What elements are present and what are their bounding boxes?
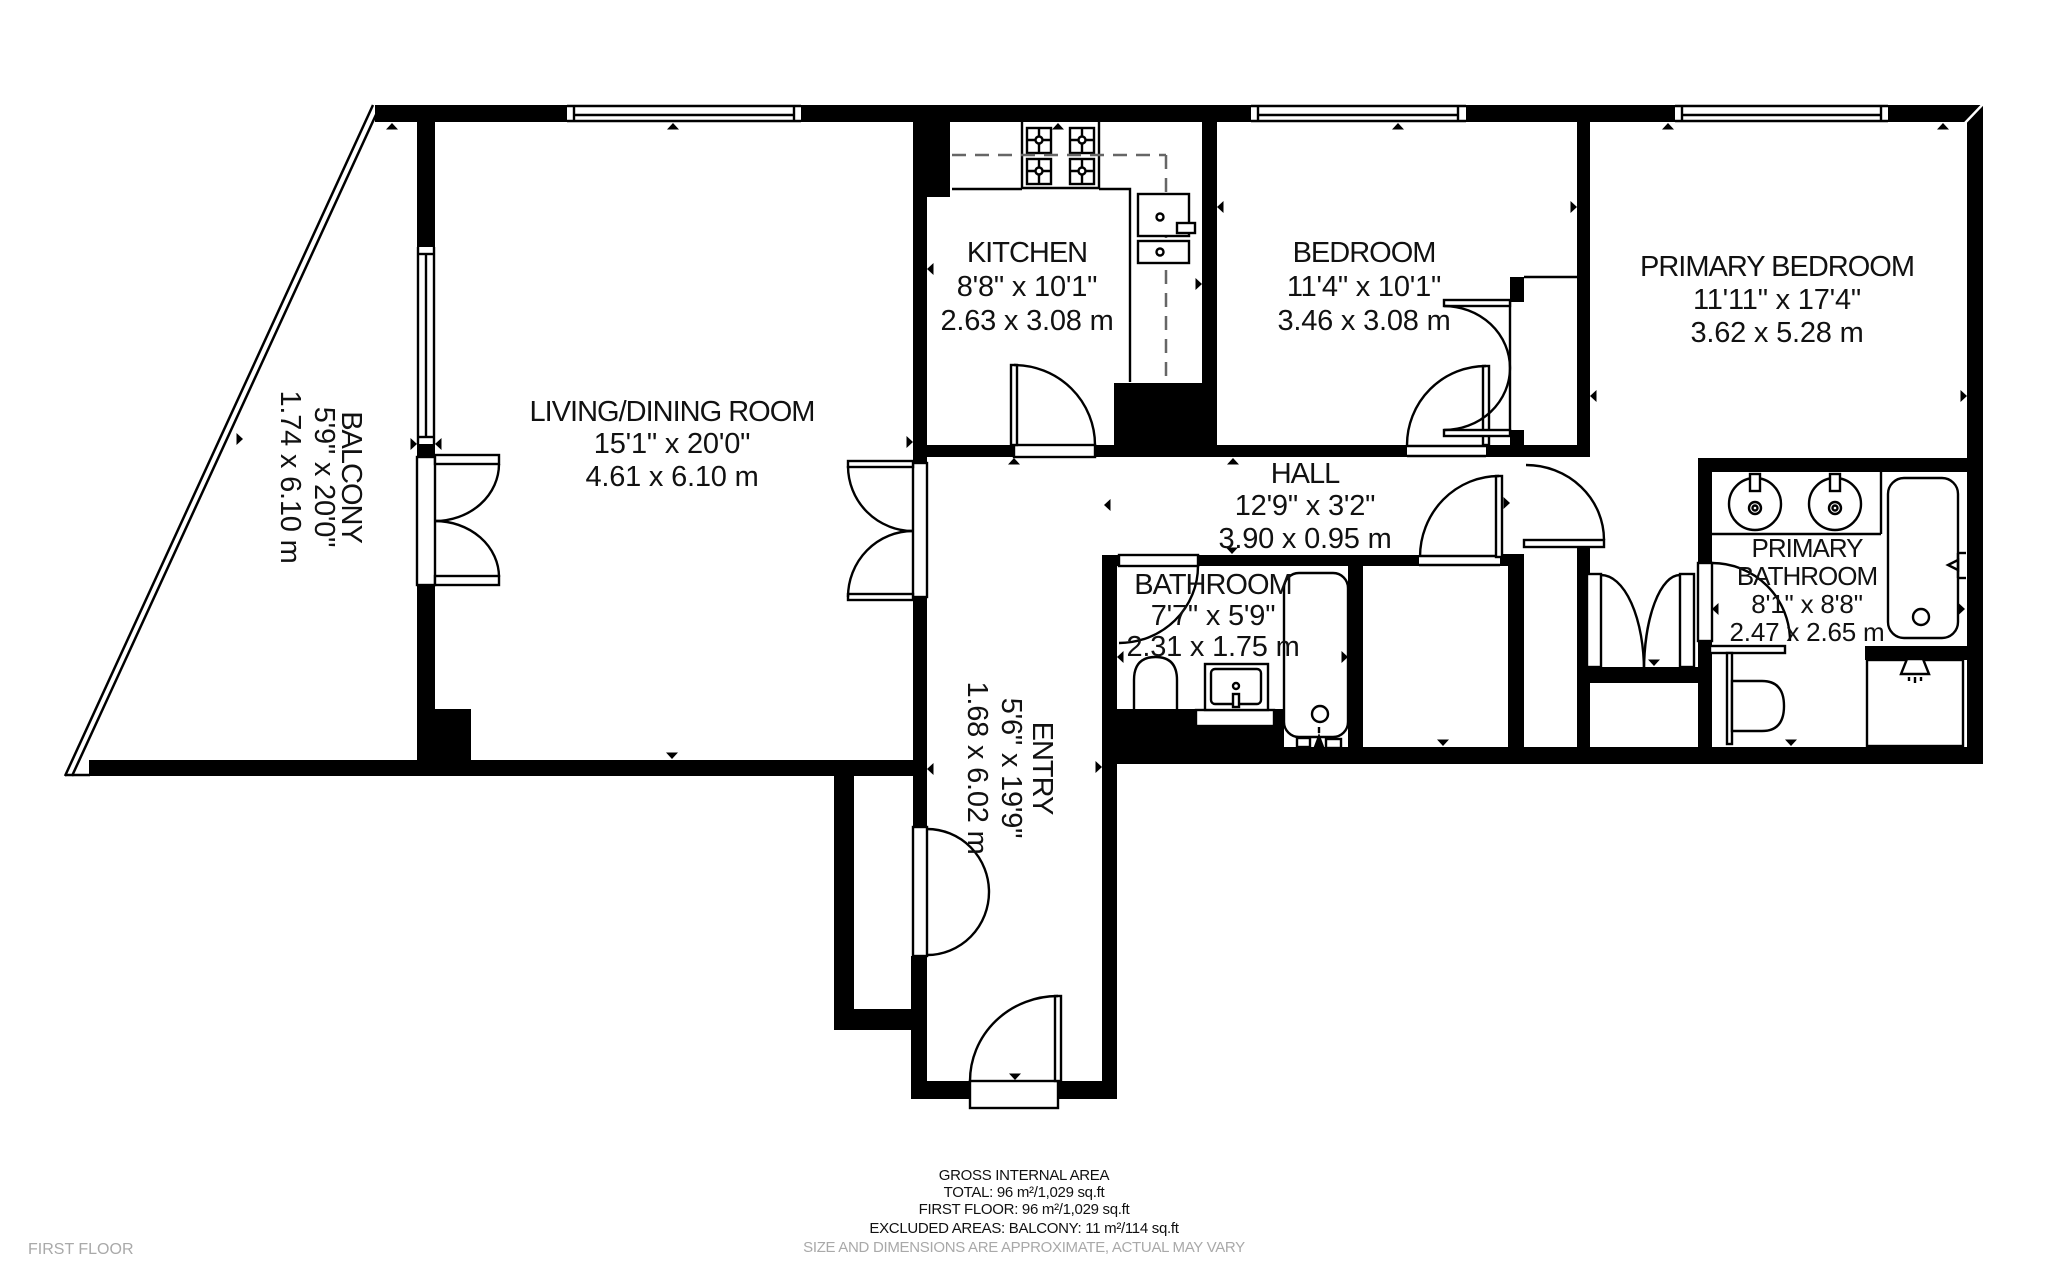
svg-text:PRIMARY BEDROOM: PRIMARY BEDROOM [1640, 251, 1914, 283]
svg-text:11'11" x 17'4": 11'11" x 17'4" [1693, 284, 1861, 316]
svg-text:7'7" x 5'9": 7'7" x 5'9" [1151, 600, 1276, 632]
svg-text:GROSS INTERNAL AREA: GROSS INTERNAL AREA [939, 1167, 1110, 1184]
svg-text:8'1" x 8'8": 8'1" x 8'8" [1751, 589, 1862, 619]
svg-text:EXCLUDED AREAS: BALCONY: 11 m²: EXCLUDED AREAS: BALCONY: 11 m²/114 sq.ft [869, 1220, 1179, 1237]
svg-text:BEDROOM: BEDROOM [1293, 237, 1436, 269]
svg-text:LIVING/DINING ROOM: LIVING/DINING ROOM [530, 396, 815, 428]
svg-text:BATHROOM: BATHROOM [1134, 569, 1291, 601]
svg-text:KITCHEN: KITCHEN [967, 237, 1087, 269]
svg-text:5'9" x 20'0": 5'9" x 20'0" [308, 407, 340, 548]
svg-text:2.63 x 3.08 m: 2.63 x 3.08 m [940, 305, 1113, 337]
svg-text:1.68 x 6.02 m: 1.68 x 6.02 m [961, 681, 993, 854]
svg-text:SIZE AND DIMENSIONS ARE APPROX: SIZE AND DIMENSIONS ARE APPROXIMATE, ACT… [803, 1239, 1245, 1256]
svg-text:12'9" x 3'2": 12'9" x 3'2" [1235, 490, 1376, 522]
svg-text:11'4" x 10'1": 11'4" x 10'1" [1287, 271, 1441, 303]
svg-text:FIRST FLOOR: 96 m²/1,029 sq.ft: FIRST FLOOR: 96 m²/1,029 sq.ft [919, 1201, 1131, 1218]
svg-text:1.74 x 6.10 m: 1.74 x 6.10 m [274, 390, 306, 563]
svg-text:PRIMARY: PRIMARY [1752, 533, 1864, 563]
svg-text:3.90 x 0.95 m: 3.90 x 0.95 m [1218, 523, 1391, 555]
svg-text:3.46 x 3.08 m: 3.46 x 3.08 m [1277, 305, 1450, 337]
svg-text:FIRST FLOOR: FIRST FLOOR [28, 1241, 134, 1258]
svg-text:2.31 x 1.75 m: 2.31 x 1.75 m [1126, 631, 1299, 663]
svg-text:8'8" x 10'1": 8'8" x 10'1" [957, 271, 1098, 303]
svg-text:ENTRY: ENTRY [1026, 722, 1058, 815]
svg-text:BATHROOM: BATHROOM [1737, 561, 1877, 591]
svg-text:5'6" x 19'9": 5'6" x 19'9" [995, 698, 1027, 839]
svg-text:2.47 x 2.65 m: 2.47 x 2.65 m [1730, 617, 1885, 647]
svg-text:15'1" x 20'0": 15'1" x 20'0" [594, 428, 750, 460]
svg-text:TOTAL: 96 m²/1,029 sq.ft: TOTAL: 96 m²/1,029 sq.ft [944, 1184, 1106, 1201]
svg-text:HALL: HALL [1271, 458, 1340, 490]
svg-text:3.62 x 5.28 m: 3.62 x 5.28 m [1690, 317, 1863, 349]
svg-text:4.61 x 6.10 m: 4.61 x 6.10 m [585, 461, 758, 493]
